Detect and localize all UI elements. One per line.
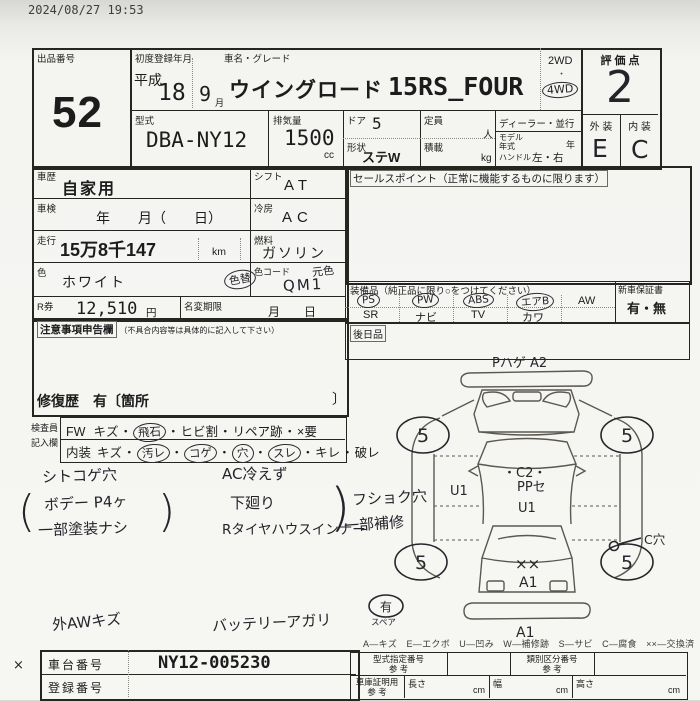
- circle-mark-tobiishi: 飛石: [132, 422, 166, 443]
- equip-sr: SR: [363, 309, 378, 321]
- height-unit: cm: [668, 685, 680, 695]
- diagram-top-mark: Pハゲ A2: [492, 356, 547, 371]
- km-cell-divider2: [240, 238, 241, 260]
- disp-divider: [268, 110, 269, 166]
- repair-history-text: 修復歴 有〔箇所: [37, 391, 149, 411]
- wheel-mark: 5: [621, 552, 633, 574]
- scan-timestamp: 2024/08/27 19:53: [28, 3, 144, 17]
- km-cell-divider: [198, 238, 199, 260]
- diagram-a1-gate: A1: [519, 575, 537, 591]
- interior-label: 内 装: [622, 118, 657, 133]
- note-paren-close: ): [158, 486, 175, 537]
- circle-mark-sure: スレ: [267, 443, 301, 464]
- auction-number: 52: [52, 88, 103, 138]
- circle-mark-yogore: 汚レ: [136, 443, 170, 464]
- type-designation-label: 型式指定番号: [352, 654, 445, 664]
- separator: ・: [283, 425, 298, 439]
- br-col-2: [510, 652, 511, 675]
- separator: ・: [217, 446, 232, 460]
- shift-label: シフト: [254, 169, 283, 183]
- note-seat-burn: シトコゲ穴: [42, 464, 118, 488]
- separator: ・: [122, 446, 137, 460]
- fw-item: ヒビ割: [180, 425, 218, 439]
- cool-value: AC: [282, 209, 313, 226]
- equip-col-4: [561, 295, 562, 322]
- chassis-label: 車台番号: [48, 656, 104, 673]
- interior-row-label: 内装: [66, 446, 91, 460]
- damage-legend: A―キズ E―エクボ U―凹み W―補修跡 S―サビ C―腐食 ××―交換済: [363, 637, 694, 650]
- exterior-grade: E: [592, 134, 608, 163]
- model-year-label: モデル年式: [499, 133, 529, 151]
- mileage-value: 15万8千147: [60, 236, 156, 262]
- warranty-value: 有・無: [627, 298, 666, 317]
- eval-divider-v: [620, 114, 621, 166]
- color-code-value: QM1: [283, 275, 324, 295]
- wheel-mark: 5: [621, 425, 633, 447]
- separator: ・: [301, 446, 316, 460]
- dealer-row-divider: [495, 131, 581, 132]
- spare-mark: 有: [380, 600, 392, 614]
- spare-label: スペア: [371, 618, 396, 628]
- shift-value: AT: [284, 177, 312, 194]
- registration-number-label: 登録番号: [48, 679, 104, 696]
- cool-label: 冷房: [254, 201, 273, 215]
- circle-mark-ana: 穴: [231, 443, 254, 463]
- equip-col-3: [507, 295, 508, 322]
- circle-mark-koge: コゲ: [183, 443, 217, 464]
- height-label: 高さ: [576, 677, 594, 690]
- top-row-divider: [130, 110, 581, 111]
- fuel-value: ガソリン: [262, 243, 326, 263]
- equip-col-1: [399, 295, 400, 322]
- shape-value: ステW: [362, 147, 400, 166]
- caution-label: 注意事項申告欄 （不具合内容等は具体的に記入して下さい）: [37, 321, 279, 338]
- margin-x-mark: ×: [13, 658, 24, 673]
- diagram-u1-left: U1: [450, 484, 468, 499]
- month-unit: 月: [215, 96, 224, 109]
- note-battery: バッテリーアガリ: [212, 609, 332, 636]
- model-label: 型式: [135, 113, 154, 127]
- inspector-label-1: 検査員: [31, 421, 58, 434]
- handwritten-labels: Pハゲ A2 5 5 5 5 U1 ・C2・ PPセ U1 C穴 ×× A1 A…: [371, 356, 666, 641]
- width-unit: cm: [556, 685, 568, 695]
- r-ticket-label: R券: [37, 299, 53, 313]
- type-designation-cell: 型式指定番号 参 考: [352, 654, 445, 674]
- later-items-label-text: 後日品: [350, 325, 386, 342]
- diagram-ppse: PPセ: [517, 480, 546, 495]
- class-number-cell: 類別区分番号 参 考: [512, 654, 592, 674]
- first-registration-label: 初度登録年月: [135, 51, 192, 65]
- fw-label: FW: [66, 425, 85, 439]
- sales-point-label-text: セールスポイント（正常に機能するものに限ります）: [350, 170, 608, 187]
- shaken-value: 年 月（ 日）: [96, 208, 222, 228]
- handle-value: 左・右: [532, 150, 564, 165]
- note-body-paint: ボデー P4ヶ: [44, 490, 128, 515]
- namechange-divider: [180, 296, 181, 318]
- equip-aw: AW: [578, 295, 595, 307]
- caution-sublabel: （不具合内容等は具体的に記入して下さい）: [119, 326, 279, 335]
- width-label: 幅: [493, 677, 502, 690]
- chassis-row-divider: [40, 674, 356, 675]
- int-item: キズ: [97, 446, 122, 460]
- auction-cell-divider: [130, 48, 132, 166]
- chassis-number: NY12-005230: [158, 653, 271, 673]
- note-aw-scratch: 外AWキズ: [51, 608, 122, 635]
- history-label: 車歴: [37, 169, 56, 183]
- r-ticket-value: 12,510: [76, 299, 137, 319]
- note-underside: 下廻り: [230, 492, 275, 513]
- diagram-u1-mid: U1: [518, 501, 536, 516]
- load-divider: [420, 138, 495, 139]
- dealer-divider: [495, 110, 496, 166]
- diagram-c-hole: C穴: [644, 532, 666, 547]
- wheel-mark: 5: [417, 425, 429, 447]
- int-item: キレ: [315, 446, 340, 460]
- car-name: ウイングロード: [229, 74, 383, 104]
- separator: ・: [118, 425, 133, 439]
- separator: ・: [253, 446, 268, 460]
- shaken-label: 車検: [37, 201, 56, 215]
- wheel-mark: 5: [415, 552, 427, 574]
- registration-month: 9: [199, 82, 211, 106]
- br-col-5: [489, 675, 490, 698]
- evaluation-score: 2: [606, 62, 634, 113]
- drive-2wd: 2WD: [548, 55, 572, 67]
- mileage-label: 走行: [37, 233, 56, 247]
- equip-col-2: [453, 295, 454, 322]
- auction-number-label: 出品番号: [37, 51, 75, 65]
- door-label: ドア: [347, 113, 366, 127]
- separator: ・: [218, 425, 233, 439]
- diagram-xx: ××: [515, 555, 540, 573]
- registration-year: 18: [158, 80, 186, 106]
- br-col-4: [404, 675, 405, 698]
- color-value: ホワイト: [62, 272, 126, 292]
- load-unit: kg: [481, 153, 492, 164]
- garage-cert-label: 車庫証明用: [351, 677, 403, 687]
- length-unit: cm: [473, 685, 485, 695]
- br-col-3: [594, 652, 595, 675]
- exterior-label: 外 装: [583, 118, 619, 133]
- car-grade: 15RS_FOUR: [388, 72, 523, 101]
- garage-cert-cell: 車庫証明用 参 考: [351, 677, 403, 697]
- br-row-divider: [350, 675, 686, 676]
- note-partial-no-paint: 一部塗装ナシ: [38, 516, 129, 540]
- row-divider-2: [32, 230, 345, 231]
- separator: ・: [170, 446, 185, 460]
- displacement-unit: cc: [324, 150, 334, 161]
- model-year-unit: 年: [566, 138, 575, 151]
- sales-point-label: セールスポイント（正常に機能するものに限ります）: [350, 170, 608, 187]
- handle-label: ハンドル: [499, 152, 531, 163]
- month-cell-divider: [192, 58, 193, 108]
- capacity-label: 定員: [424, 113, 443, 127]
- br-col-6: [572, 675, 573, 698]
- length-label: 長さ: [408, 677, 426, 690]
- shape-divider: [343, 138, 420, 139]
- reference-label: 参 考: [352, 664, 445, 674]
- row-divider-4: [32, 296, 345, 297]
- inspector-interior-row: 内装キズ・汚レ・コゲ・穴・スレ・キレ・破レ: [66, 442, 380, 463]
- reference-label: 参 考: [512, 664, 592, 674]
- equip-tv: TV: [471, 309, 485, 321]
- inspector-label-2: 記入欄: [31, 436, 58, 449]
- reference-label: 参 考: [351, 687, 403, 697]
- interior-grade: C: [631, 135, 648, 164]
- displacement-label: 排気量: [273, 113, 302, 127]
- wd-cell-divider: [540, 48, 541, 110]
- later-items-label: 後日品: [350, 325, 386, 342]
- history-value: 自家用: [62, 175, 116, 199]
- later-items-box: [345, 322, 690, 360]
- note-ac: AC冷えず: [222, 463, 287, 484]
- repair-history-close: 〕: [332, 389, 346, 409]
- fw-item: ×要: [297, 425, 317, 439]
- displacement-value: 1500: [284, 126, 335, 150]
- door-count: 5: [372, 114, 382, 133]
- fw-item: リペア跡: [233, 425, 283, 439]
- drive-dot: ・: [557, 67, 566, 80]
- separator: ・: [166, 425, 181, 439]
- chassis-col-divider: [128, 650, 129, 697]
- name-change-label: 名変期限: [184, 299, 222, 313]
- caution-label-text: 注意事項申告欄: [37, 321, 117, 338]
- class-number-label: 類別区分番号: [512, 654, 592, 664]
- br-col-1: [447, 652, 448, 675]
- inspector-fw-row: FWキズ・飛石・ヒビ割・リペア跡・×要: [66, 421, 317, 442]
- car-damage-diagram: Pハゲ A2 5 5 5 5 U1 ・C2・ PPセ U1 C穴 ×× A1 A…: [348, 356, 688, 644]
- auction-sheet-scan: 2024/08/27 19:53 出品番号 52 初度登録年月 平成 18 9 …: [0, 0, 700, 700]
- fw-item: キズ: [93, 425, 118, 439]
- dealer-label: ディーラー・並行: [499, 116, 574, 130]
- mileage-unit: km: [212, 246, 226, 258]
- load-label: 積載: [424, 140, 443, 154]
- model-code: DBA-NY12: [146, 128, 247, 152]
- corrosion-pointer-line: [619, 538, 641, 544]
- warranty-label: 新車保証書: [618, 283, 663, 296]
- diagram-c2: ・C2・: [503, 466, 546, 481]
- note-paren-open: (: [18, 486, 35, 537]
- name-grade-label: 車名・グレード: [224, 51, 291, 65]
- color-label: 色: [37, 265, 47, 279]
